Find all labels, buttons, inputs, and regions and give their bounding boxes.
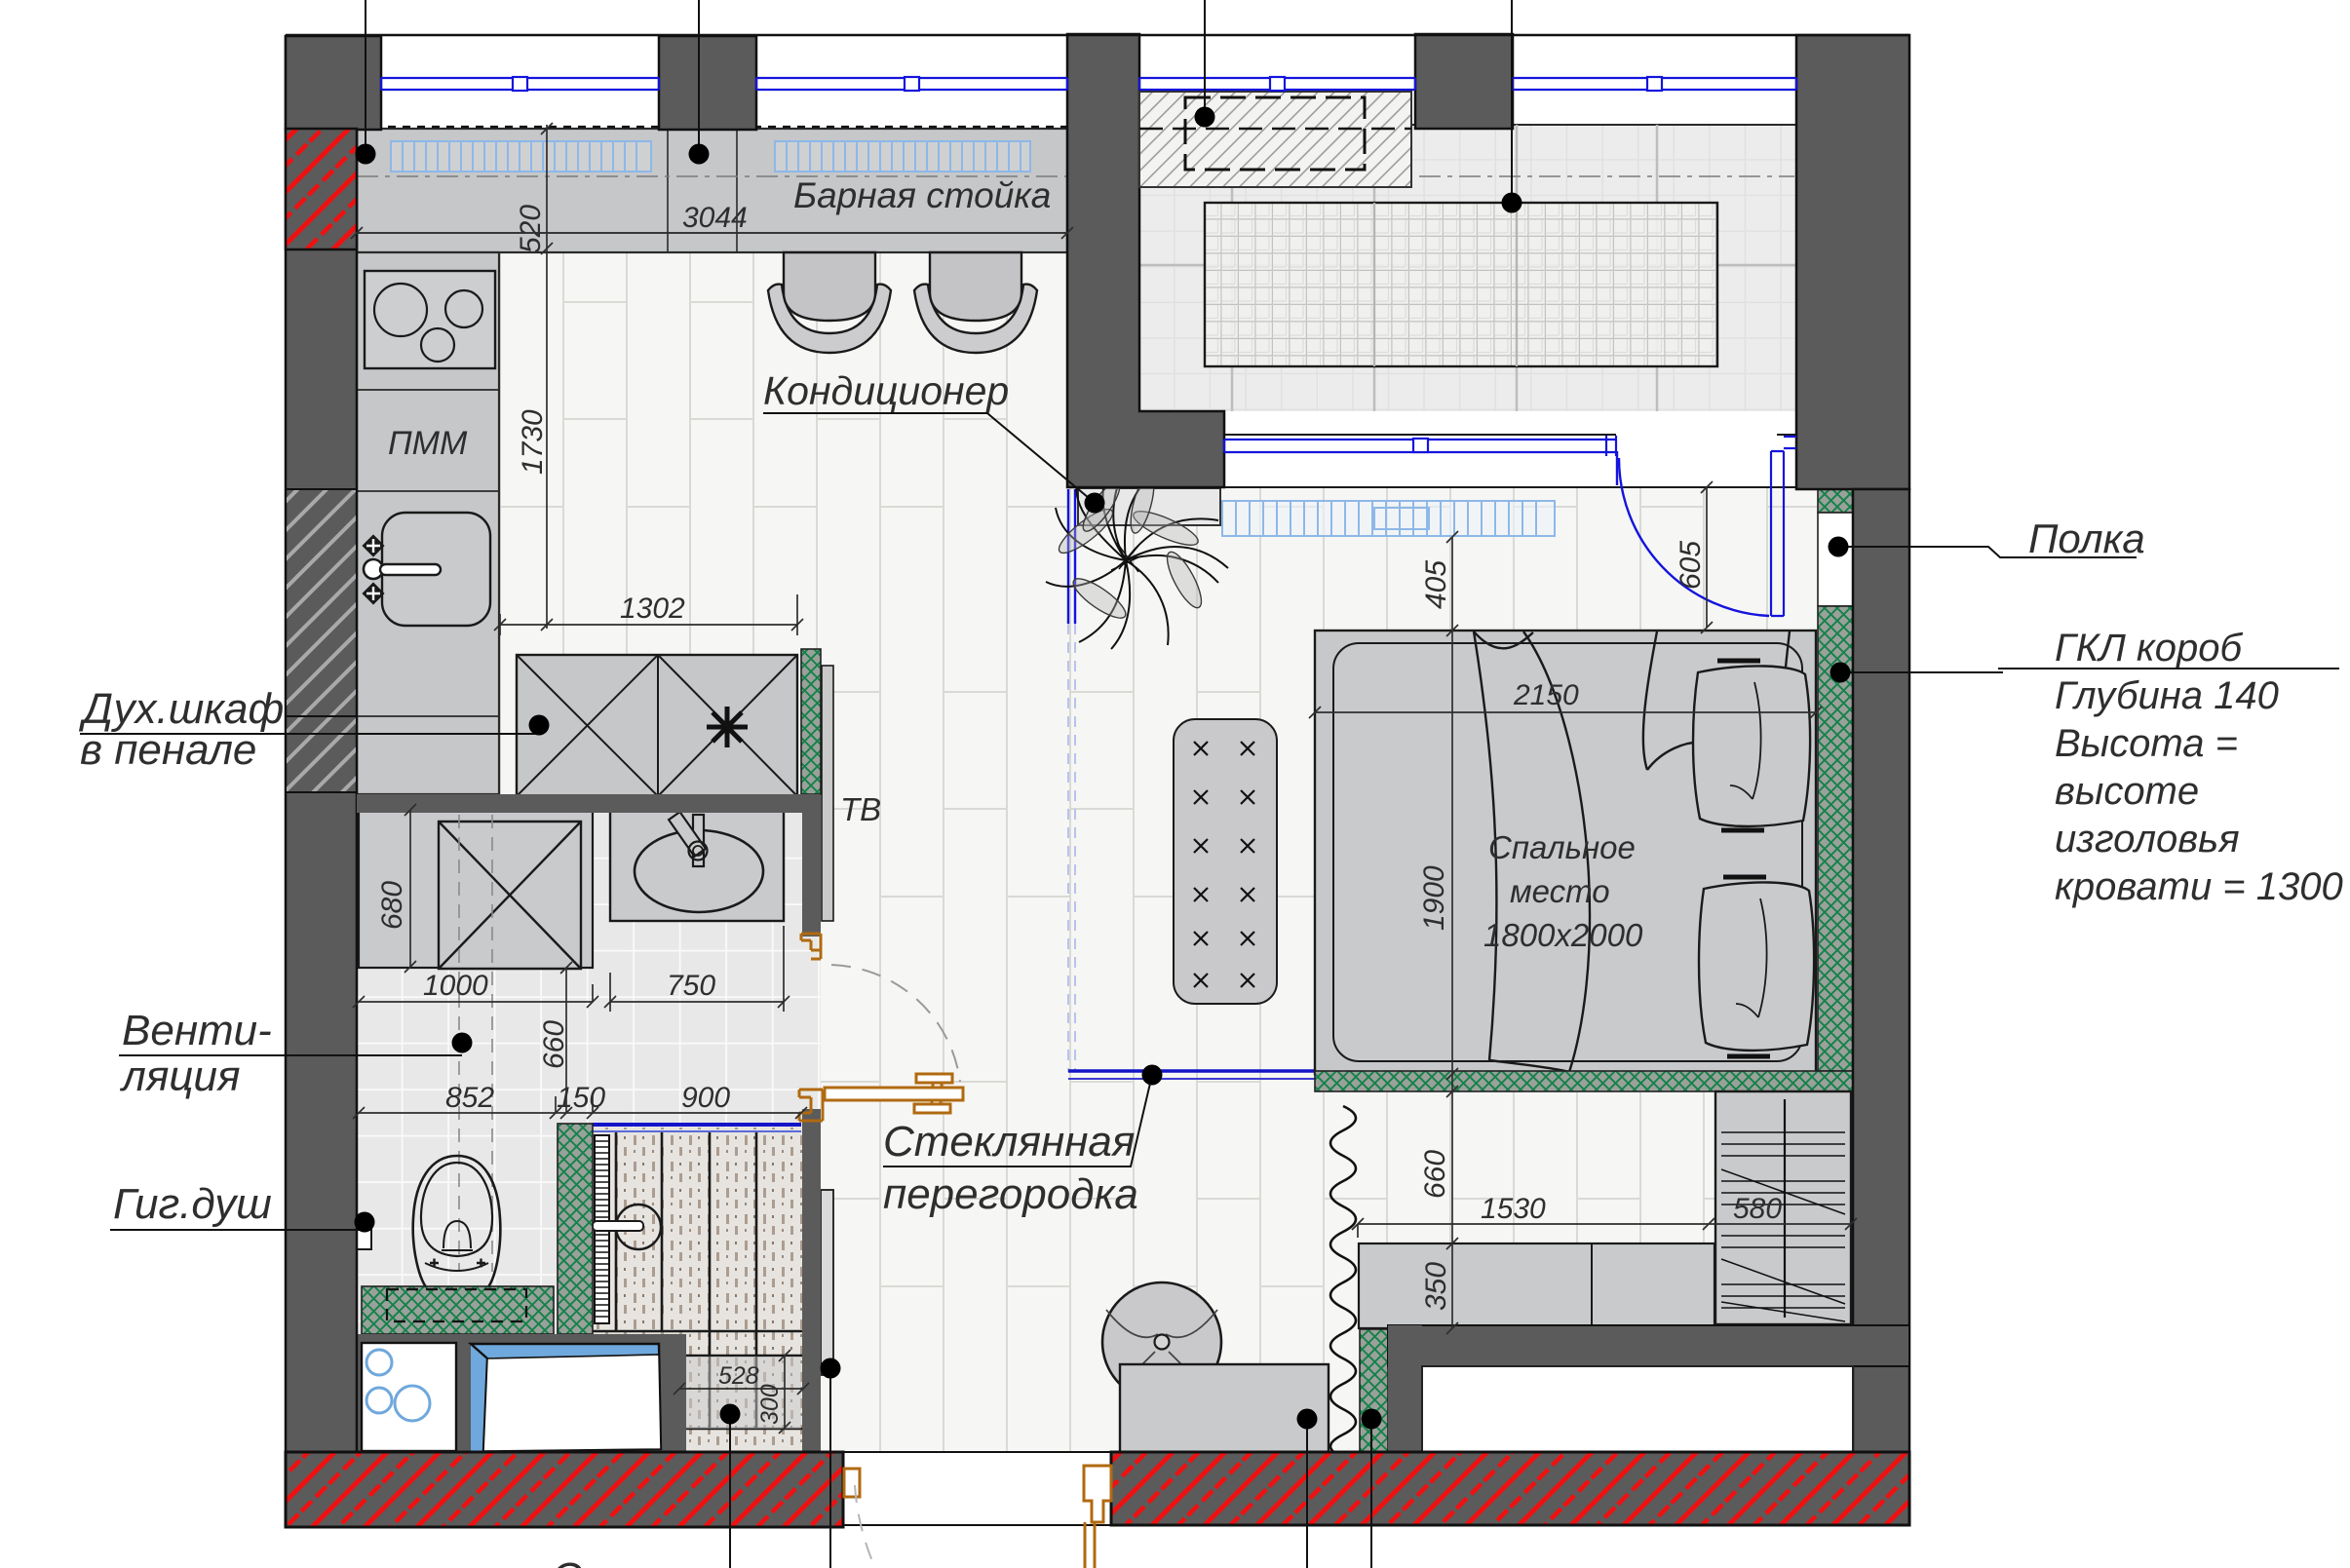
svg-text:680: 680 (376, 881, 408, 930)
svg-text:кровати = 1300: кровати = 1300 (2055, 865, 2343, 908)
svg-text:место: место (1510, 873, 1610, 909)
svg-text:ТВ: ТВ (840, 791, 881, 827)
svg-text:1530: 1530 (1481, 1193, 1546, 1225)
svg-text:1730: 1730 (517, 409, 549, 475)
svg-text:3044: 3044 (682, 202, 748, 234)
svg-text:ГКЛ короб: ГКЛ короб (2055, 627, 2243, 669)
svg-text:150: 150 (557, 1082, 605, 1114)
svg-text:660: 660 (538, 1020, 570, 1069)
svg-text:изголовья: изголовья (2055, 818, 2240, 860)
svg-text:1302: 1302 (620, 593, 685, 625)
svg-text:1800х2000: 1800х2000 (1483, 917, 1643, 953)
svg-text:Стеклянная: Стеклянная (883, 1118, 1135, 1166)
svg-text:Высота =: Высота = (2055, 722, 2238, 765)
svg-text:750: 750 (667, 970, 715, 1002)
svg-text:высоте: высоте (2055, 770, 2199, 813)
svg-text:300: 300 (756, 1384, 784, 1425)
svg-text:Полка: Полка (2028, 516, 2145, 561)
svg-text:Венти-: Венти- (122, 1007, 272, 1054)
svg-text:Глубина 140: Глубина 140 (2055, 674, 2279, 717)
svg-text:Барная стойка: Барная стойка (793, 175, 1051, 215)
svg-text:350: 350 (1420, 1262, 1452, 1311)
svg-text:Гиг.душ: Гиг.душ (113, 1180, 272, 1228)
svg-text:ПММ: ПММ (388, 425, 468, 462)
svg-text:605: 605 (1675, 541, 1707, 590)
svg-text:ляция: ляция (119, 1052, 240, 1100)
svg-text:900: 900 (681, 1082, 730, 1114)
svg-text:405: 405 (1420, 560, 1452, 609)
svg-text:580: 580 (1733, 1193, 1782, 1225)
svg-text:Спальное: Спальное (1488, 829, 1636, 865)
svg-text:Кондиционер: Кондиционер (763, 368, 1009, 413)
svg-text:1000: 1000 (423, 970, 488, 1002)
svg-text:852: 852 (445, 1082, 494, 1114)
svg-text:Сушильная: Сушильная (551, 1554, 779, 1568)
svg-text:перегородка: перегородка (883, 1170, 1138, 1218)
svg-text:520: 520 (515, 205, 547, 253)
svg-text:2150: 2150 (1513, 679, 1579, 711)
svg-text:1900: 1900 (1418, 865, 1450, 931)
svg-text:660: 660 (1419, 1150, 1451, 1199)
svg-text:528: 528 (718, 1362, 759, 1390)
